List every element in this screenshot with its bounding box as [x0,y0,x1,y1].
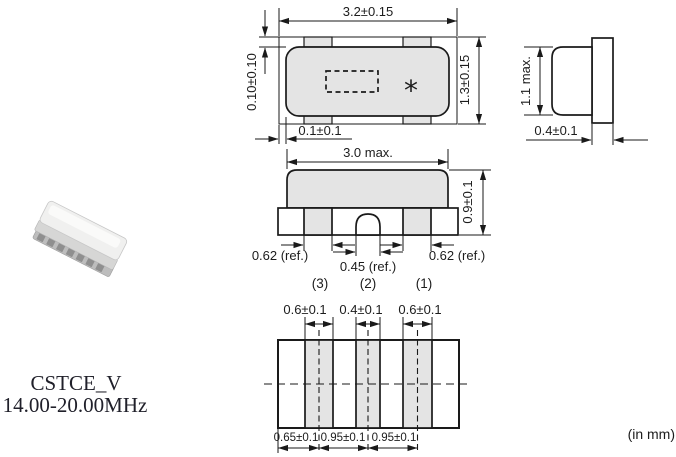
front-view-center-terminal-dome [356,214,380,235]
units-note-label: (in mm) [628,426,675,442]
dim-label-land-pad2-width: 0.4±0.1 [339,302,382,317]
terminal-3-label: (3) [312,276,329,291]
dim-label-terminal1-width: 0.62 (ref.) [429,248,485,263]
dim-label-electrode-top-offset: 0.10±0.10 [244,53,259,111]
top-view-body [286,47,449,116]
dim-label-top-width: 3.2±0.15 [343,4,394,19]
dim-label-electrode-side-offset: 0.1±0.1 [298,123,341,138]
datasheet-dimension-drawing: * 3.2±0.15 1.3±0.15 0.10±0.10 [0,0,676,457]
front-view-terminal-1-pad [403,208,431,235]
terminal-2-label: (2) [360,276,377,291]
dim-side-terminal-thickness: 0.4±0.1 [526,123,648,145]
dim-label-side-height: 1.1 max. [518,56,533,106]
dim-label-land-edge-spacing: 0.65±0.1 [274,432,319,444]
land-pattern-view: 0.6±0.1 0.4±0.1 0.6±0.1 0.65±0.1 0.95±0.… [264,302,472,453]
dim-side-body-height: 1.1 max. [518,47,553,115]
dim-label-terminal-thickness: 0.4±0.1 [534,123,577,138]
dim-top-overall-width: 3.2±0.15 [279,4,457,36]
dim-front-body-width: 3.0 max. [287,145,448,169]
dim-label-front-height: 0.9±0.1 [460,180,475,223]
terminal-number-labels: (3) (2) (1) [312,276,433,291]
dim-label-terminal2-width: 0.45 (ref.) [340,259,396,274]
front-view-body [287,170,448,208]
dim-label-terminal3-width: 0.62 (ref.) [252,248,308,263]
component-photo [31,200,128,277]
front-view: 3.0 max. 0.9±0.1 0.62 (ref.) 0.45 (ref.) [252,145,491,291]
dim-top-overall-height: 1.3±0.15 [457,37,486,124]
side-view: 1.1 max. 0.4±0.1 [518,38,648,145]
dim-label-land-pad3-width: 0.6±0.1 [283,302,326,317]
dim-label-top-height: 1.3±0.15 [457,55,472,106]
polarity-marking-asterisk: * [404,74,418,107]
side-view-body [552,47,592,115]
front-view-terminal-3-pad [304,208,332,235]
dim-label-land-pitch-32: 0.95±0.1 [321,432,366,444]
terminal-1-label: (1) [416,276,433,291]
frequency-range-label: 14.00-20.00MHz [3,393,148,417]
dim-label-land-pitch-21: 0.95±0.1 [372,432,417,444]
top-view: * 3.2±0.15 1.3±0.15 0.10±0.10 [244,4,486,144]
dim-terminal2-width: 0.45 (ref.) [333,236,403,274]
dim-label-land-pad1-width: 0.6±0.1 [398,302,441,317]
product-series-label: CSTCE_V [30,371,121,395]
dim-land-pad-spacings: 0.65±0.1 0.95±0.1 0.95±0.1 [274,429,417,453]
side-view-end-terminal [592,38,613,123]
dim-label-front-width: 3.0 max. [343,145,393,160]
